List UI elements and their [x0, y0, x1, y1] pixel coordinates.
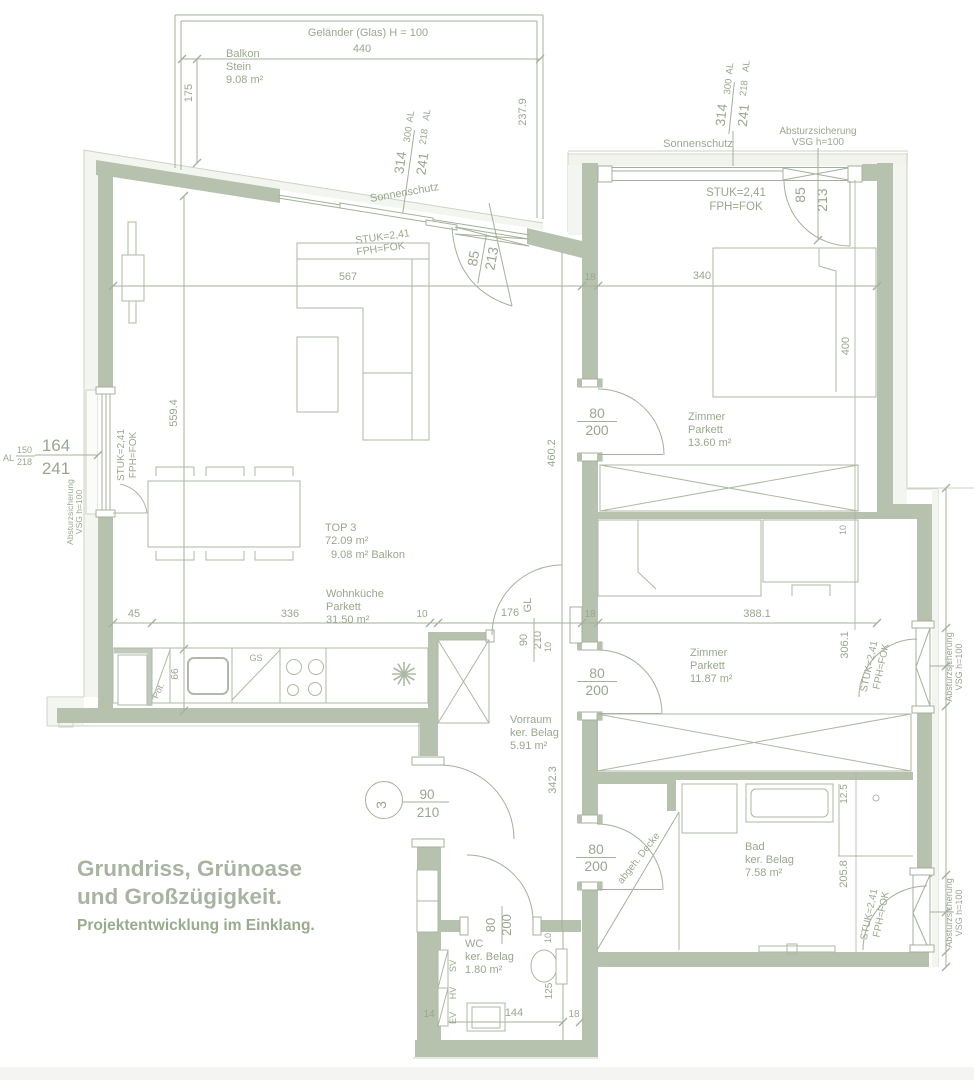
svg-text:7.58 m²: 7.58 m² — [745, 867, 783, 879]
svg-text:400: 400 — [840, 337, 852, 355]
svg-text:241: 241 — [42, 459, 70, 478]
svg-text:85: 85 — [792, 187, 808, 203]
svg-text:Balkon: Balkon — [226, 48, 260, 60]
svg-text:388.1: 388.1 — [743, 608, 771, 620]
svg-text:TOP 3: TOP 3 — [325, 522, 356, 534]
svg-text:213: 213 — [481, 245, 501, 271]
svg-text:3: 3 — [373, 801, 389, 809]
svg-text:12.5: 12.5 — [839, 784, 850, 804]
svg-text:241: 241 — [413, 152, 431, 176]
svg-text:300: 300 — [402, 126, 415, 143]
svg-text:1.80 m²: 1.80 m² — [465, 964, 503, 976]
svg-text:567: 567 — [339, 271, 357, 283]
svg-text:GL: GL — [522, 598, 534, 613]
svg-text:218: 218 — [738, 80, 751, 97]
svg-text:210: 210 — [417, 805, 440, 820]
svg-text:80: 80 — [483, 918, 498, 932]
svg-text:218: 218 — [418, 128, 431, 145]
svg-text:175: 175 — [183, 84, 195, 102]
svg-text:VSG h=100: VSG h=100 — [74, 490, 84, 534]
svg-text:Absturzsicherung: Absturzsicherung — [944, 632, 954, 702]
svg-text:18: 18 — [584, 609, 596, 620]
svg-text:14: 14 — [423, 1009, 435, 1020]
svg-text:9.08 m²: 9.08 m² — [226, 74, 264, 86]
svg-text:80: 80 — [588, 841, 604, 857]
svg-text:HV: HV — [448, 987, 458, 1000]
svg-text:342.3: 342.3 — [547, 766, 559, 794]
svg-text:und Großzügigkeit.: und Großzügigkeit. — [77, 884, 282, 909]
svg-text:Geländer (Glas) H = 100: Geländer (Glas) H = 100 — [308, 27, 428, 39]
svg-text:18: 18 — [568, 1009, 580, 1020]
svg-text:72.09 m²: 72.09 m² — [325, 535, 369, 547]
svg-text:200: 200 — [585, 682, 609, 698]
svg-text:AL: AL — [405, 110, 418, 123]
svg-text:336: 336 — [281, 608, 299, 620]
svg-text:31.50 m²: 31.50 m² — [326, 614, 370, 626]
svg-text:314: 314 — [391, 150, 409, 175]
svg-text:STUK=2,41: STUK=2,41 — [706, 187, 766, 199]
svg-text:VSG h=100: VSG h=100 — [954, 644, 964, 691]
svg-text:AL: AL — [740, 60, 752, 73]
svg-text:213: 213 — [814, 188, 830, 212]
svg-text:Parkett: Parkett — [688, 424, 723, 436]
svg-text:241: 241 — [735, 103, 752, 127]
svg-text:Projektentwicklung im Einklang: Projektentwicklung im Einklang. — [77, 917, 315, 934]
svg-text:10: 10 — [838, 525, 848, 535]
svg-text:144: 144 — [505, 1007, 523, 1019]
svg-text:80: 80 — [589, 665, 605, 681]
svg-text:EV: EV — [448, 1012, 458, 1024]
svg-text:10: 10 — [543, 933, 553, 943]
svg-text:80: 80 — [589, 405, 605, 421]
svg-text:Absturzsicherung: Absturzsicherung — [779, 126, 856, 137]
svg-text:11.87 m²: 11.87 m² — [690, 673, 733, 685]
svg-text:VSG h=100: VSG h=100 — [954, 890, 964, 937]
svg-text:Stein: Stein — [226, 61, 251, 73]
svg-text:ker. Belag: ker. Belag — [510, 727, 559, 739]
svg-text:9.08 m² Balkon: 9.08 m² Balkon — [331, 549, 405, 561]
svg-text:10: 10 — [416, 609, 428, 620]
svg-text:ker. Belag: ker. Belag — [465, 951, 514, 963]
svg-text:164: 164 — [42, 436, 70, 455]
svg-text:FPH=FOK: FPH=FOK — [709, 201, 763, 213]
svg-text:VSG h=100: VSG h=100 — [792, 137, 844, 148]
svg-text:237.9: 237.9 — [517, 98, 529, 126]
svg-text:Parkett: Parkett — [690, 660, 725, 672]
svg-text:Bad: Bad — [745, 841, 765, 853]
svg-text:66: 66 — [170, 668, 181, 680]
svg-text:Vorraum: Vorraum — [510, 714, 552, 726]
svg-text:559.4: 559.4 — [168, 399, 180, 427]
svg-text:13.60 m²: 13.60 m² — [688, 437, 732, 449]
svg-text:150: 150 — [17, 445, 32, 455]
svg-text:Zimmer: Zimmer — [688, 411, 726, 423]
svg-text:90: 90 — [419, 787, 434, 802]
svg-text:18: 18 — [584, 272, 596, 283]
svg-text:340: 340 — [693, 270, 711, 282]
svg-text:Zimmer: Zimmer — [690, 647, 728, 659]
svg-text:85: 85 — [464, 249, 482, 267]
svg-text:SV: SV — [448, 960, 458, 972]
svg-text:STUK=2,41: STUK=2,41 — [116, 429, 127, 481]
svg-text:5.91 m²: 5.91 m² — [510, 740, 548, 752]
svg-text:ker. Belag: ker. Belag — [745, 854, 794, 866]
svg-text:AL: AL — [724, 62, 736, 75]
svg-text:200: 200 — [585, 422, 609, 438]
svg-text:90: 90 — [518, 634, 530, 646]
svg-text:Grundriss, Grünoase: Grundriss, Grünoase — [77, 856, 302, 881]
svg-text:205.8: 205.8 — [838, 860, 850, 888]
svg-text:125: 125 — [544, 982, 555, 999]
svg-text:AL: AL — [3, 453, 14, 463]
svg-text:200: 200 — [499, 914, 514, 936]
svg-text:460.2: 460.2 — [546, 439, 558, 467]
svg-text:GS: GS — [249, 653, 262, 663]
svg-text:306.1: 306.1 — [839, 631, 851, 659]
svg-text:300: 300 — [722, 78, 735, 95]
svg-text:AL: AL — [421, 108, 434, 121]
svg-text:Wohnküche: Wohnküche — [326, 588, 384, 600]
svg-text:Sonnenschutz: Sonnenschutz — [663, 138, 733, 150]
svg-text:218: 218 — [17, 457, 32, 467]
svg-text:200: 200 — [584, 858, 608, 874]
svg-text:WC: WC — [465, 938, 483, 950]
svg-text:176: 176 — [501, 607, 519, 619]
svg-text:10: 10 — [543, 642, 553, 652]
svg-text:440: 440 — [353, 43, 371, 55]
svg-text:FPH=FOK: FPH=FOK — [128, 431, 139, 478]
svg-text:Absturzsicherung: Absturzsicherung — [944, 878, 954, 948]
svg-text:45: 45 — [128, 608, 140, 620]
svg-text:Parkett: Parkett — [326, 601, 361, 613]
svg-text:314: 314 — [713, 103, 730, 127]
